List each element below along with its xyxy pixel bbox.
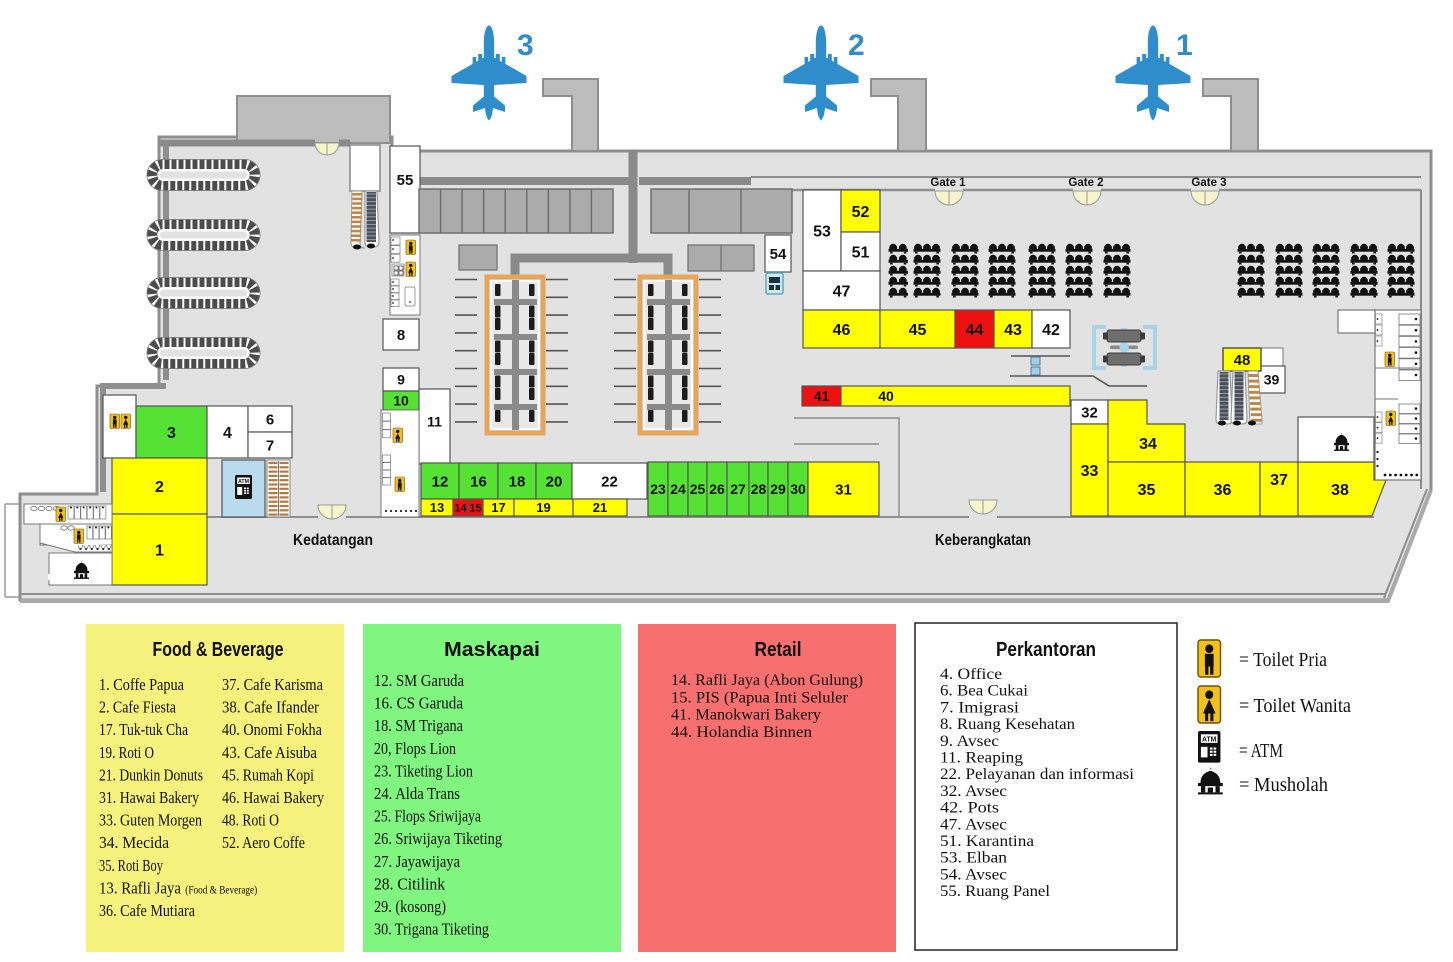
svg-text:= Toilet Wanita: = Toilet Wanita	[1239, 695, 1351, 717]
svg-text:30. Trigana Tiketing: 30. Trigana Tiketing	[374, 920, 489, 939]
svg-text:26. Sriwijaya Tiketing: 26. Sriwijaya Tiketing	[374, 829, 502, 848]
svg-text:42: 42	[1042, 322, 1060, 339]
svg-text:6. Bea Cukai: 6. Bea Cukai	[940, 683, 1029, 700]
svg-text:12: 12	[432, 473, 449, 490]
svg-text:= Toilet Pria: = Toilet Pria	[1239, 649, 1327, 671]
svg-text:19. Roti O: 19. Roti O	[99, 743, 154, 762]
svg-text:23. Tiketing Lion: 23. Tiketing Lion	[374, 761, 473, 780]
svg-text:33: 33	[1081, 463, 1099, 480]
svg-text:Gate 1: Gate 1	[930, 177, 966, 189]
svg-text:15: 15	[469, 502, 481, 514]
svg-text:51. Karantina: 51. Karantina	[940, 833, 1034, 850]
svg-text:8: 8	[397, 327, 405, 344]
svg-text:Keberangkatan: Keberangkatan	[935, 532, 1031, 549]
svg-text:22: 22	[601, 473, 618, 490]
svg-text:3: 3	[517, 29, 534, 62]
svg-text:14. Rafli Jaya (Abon Gulung): 14. Rafli Jaya (Abon Gulung)	[671, 672, 863, 689]
svg-text:48. Roti O: 48. Roti O	[222, 811, 279, 830]
svg-text:20, Flops Lion: 20, Flops Lion	[374, 739, 456, 758]
svg-text:2. Cafe Fiesta: 2. Cafe Fiesta	[99, 698, 176, 717]
svg-text:29: 29	[770, 481, 786, 497]
svg-text:19: 19	[536, 500, 550, 515]
svg-text:36. Cafe Mutiara: 36. Cafe Mutiara	[99, 901, 195, 920]
svg-text:52: 52	[852, 204, 870, 221]
svg-text:25: 25	[690, 481, 706, 497]
svg-text:21. Dunkin Donuts: 21. Dunkin Donuts	[99, 765, 203, 784]
svg-text:40: 40	[878, 388, 894, 404]
svg-text:44. Holandia Binnen: 44. Holandia Binnen	[671, 724, 812, 741]
svg-text:1: 1	[1176, 29, 1193, 62]
svg-text:43. Cafe Aisuba: 43. Cafe Aisuba	[222, 743, 317, 762]
svg-text:2: 2	[155, 479, 164, 496]
svg-text:7: 7	[266, 437, 274, 454]
svg-text:11: 11	[427, 414, 442, 430]
svg-text:43: 43	[1004, 322, 1022, 339]
svg-text:1: 1	[155, 542, 164, 559]
svg-text:8. Ruang Kesehatan: 8. Ruang Kesehatan	[940, 716, 1075, 733]
svg-text:24. Alda Trans: 24. Alda Trans	[374, 784, 460, 803]
svg-text:39: 39	[1264, 372, 1280, 388]
svg-text:33. Guten Morgen: 33. Guten Morgen	[99, 811, 202, 830]
svg-text:28: 28	[751, 481, 767, 497]
svg-text:Kedatangan: Kedatangan	[293, 532, 373, 549]
svg-text:32. Avsec: 32. Avsec	[940, 783, 1007, 800]
svg-text:45: 45	[909, 322, 927, 339]
svg-text:21: 21	[593, 500, 607, 515]
svg-text:7. Imigrasi: 7. Imigrasi	[940, 699, 1020, 716]
svg-text:28. Citilink: 28. Citilink	[374, 874, 445, 893]
svg-text:27: 27	[730, 481, 746, 497]
svg-text:15. PIS (Papua Inti Seluler: 15. PIS (Papua Inti Seluler	[671, 689, 849, 706]
svg-text:2: 2	[848, 29, 865, 62]
svg-text:22. Pelayanan dan informasi: 22. Pelayanan dan informasi	[940, 766, 1135, 783]
svg-text:= ATM: = ATM	[1239, 740, 1283, 762]
svg-text:24: 24	[670, 481, 686, 497]
svg-text:53: 53	[813, 223, 831, 240]
svg-text:Retail: Retail	[755, 639, 802, 661]
svg-text:52. Aero Coffe: 52. Aero Coffe	[222, 833, 305, 852]
svg-text:44: 44	[966, 322, 984, 339]
svg-text:55: 55	[397, 172, 414, 189]
svg-text:17: 17	[491, 500, 505, 515]
svg-text:16: 16	[470, 473, 487, 490]
svg-text:9. Avsec: 9. Avsec	[940, 733, 999, 750]
svg-text:23: 23	[650, 481, 666, 497]
svg-text:Perkantoran: Perkantoran	[996, 639, 1096, 661]
svg-text:= Musholah: = Musholah	[1239, 774, 1328, 796]
svg-text:10: 10	[393, 393, 409, 409]
svg-text:29. (kosong): 29. (kosong)	[374, 897, 446, 916]
svg-text:Food & Beverage: Food & Beverage	[153, 639, 284, 661]
svg-text:27. Jayawijaya: 27. Jayawijaya	[374, 852, 460, 871]
svg-text:38. Cafe Ifander: 38. Cafe Ifander	[222, 698, 319, 717]
svg-text:35: 35	[1138, 482, 1156, 499]
svg-text:25. Flops Sriwijaya: 25. Flops Sriwijaya	[374, 807, 481, 826]
svg-text:47. Avsec: 47. Avsec	[940, 816, 1007, 833]
svg-text:35. Roti Boy: 35. Roti Boy	[99, 856, 163, 875]
svg-text:17. Tuk-tuk Cha: 17. Tuk-tuk Cha	[99, 720, 188, 739]
svg-text:34: 34	[1139, 436, 1157, 453]
svg-text:40. Onomi Fokha: 40. Onomi Fokha	[222, 720, 322, 739]
svg-text:16. CS Garuda: 16. CS Garuda	[374, 694, 463, 713]
svg-text:31: 31	[835, 481, 852, 498]
svg-text:38: 38	[1331, 482, 1349, 499]
svg-text:53. Elban: 53. Elban	[940, 850, 1007, 867]
svg-text:11. Reaping: 11. Reaping	[940, 750, 1023, 767]
svg-text:32: 32	[1081, 404, 1098, 421]
svg-text:18. SM Trigana: 18. SM Trigana	[374, 716, 463, 735]
svg-text:26: 26	[709, 481, 725, 497]
svg-text:Gate 2: Gate 2	[1068, 177, 1103, 189]
svg-text:47: 47	[833, 283, 851, 300]
svg-text:42. Pots: 42. Pots	[940, 800, 999, 817]
svg-text:13: 13	[430, 500, 444, 515]
svg-text:30: 30	[790, 481, 806, 497]
svg-text:18: 18	[509, 473, 526, 490]
svg-text:54. Avsec: 54. Avsec	[940, 866, 1007, 883]
svg-text:54: 54	[770, 246, 787, 263]
svg-text:Maskapai: Maskapai	[444, 639, 540, 661]
svg-text:31. Hawai Bakery: 31. Hawai Bakery	[99, 788, 199, 807]
svg-text:1. Coffe Papua: 1. Coffe Papua	[99, 675, 184, 694]
svg-text:36: 36	[1214, 482, 1232, 499]
svg-text:34. Mecida: 34. Mecida	[99, 833, 169, 852]
svg-text:4. Office: 4. Office	[940, 666, 1002, 683]
svg-text:9: 9	[397, 372, 405, 388]
svg-text:48: 48	[1234, 352, 1251, 369]
svg-text:37. Cafe Karisma: 37. Cafe Karisma	[222, 675, 323, 694]
svg-text:55. Ruang Panel: 55. Ruang Panel	[940, 883, 1051, 900]
svg-text:46. Hawai Bakery: 46. Hawai Bakery	[222, 788, 324, 807]
svg-text:45. Rumah Kopi: 45. Rumah Kopi	[222, 765, 314, 784]
svg-text:37: 37	[1270, 472, 1288, 489]
svg-text:Gate 3: Gate 3	[1191, 177, 1226, 189]
svg-text:41. Manokwari Bakery: 41. Manokwari Bakery	[671, 707, 821, 724]
svg-text:3: 3	[167, 425, 176, 442]
svg-text:4: 4	[223, 425, 232, 442]
svg-text:12. SM Garuda: 12. SM Garuda	[374, 671, 464, 690]
svg-text:46: 46	[833, 322, 851, 339]
svg-text:20: 20	[546, 473, 563, 490]
svg-text:51: 51	[852, 244, 870, 261]
svg-text:41: 41	[814, 388, 830, 404]
svg-text:6: 6	[266, 411, 274, 428]
svg-text:14: 14	[454, 502, 467, 514]
